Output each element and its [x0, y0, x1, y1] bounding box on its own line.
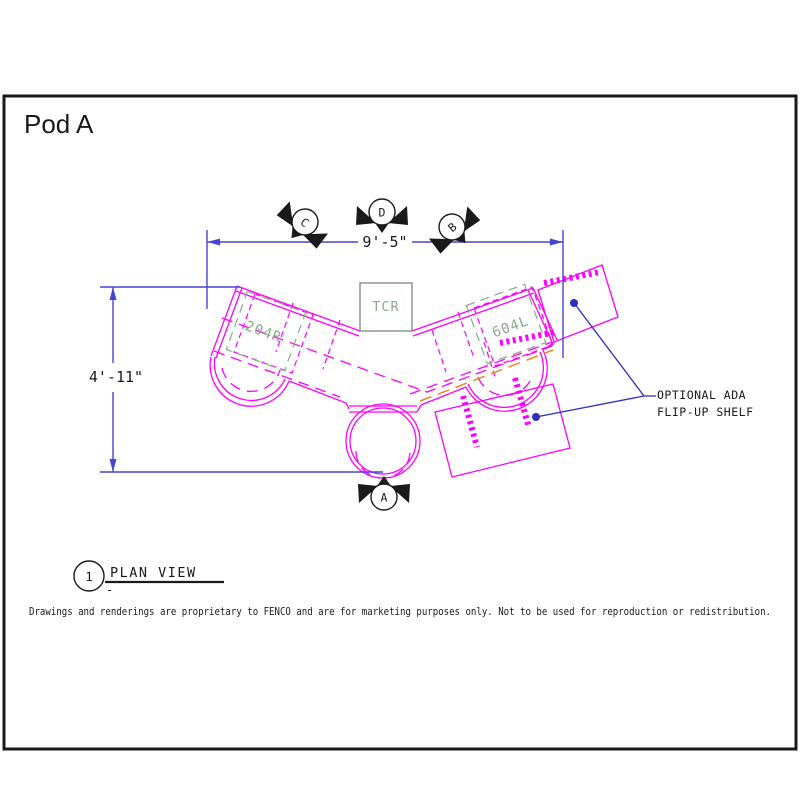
counter-dashed-front-right	[410, 342, 552, 394]
section-marker-d: D	[356, 199, 408, 233]
stool-center	[346, 404, 420, 478]
ada-leaders: OPTIONAL ADA FLIP-UP SHELF	[532, 299, 754, 421]
sheet-border	[4, 96, 796, 749]
section-letter-d: D	[379, 206, 386, 220]
label-tcr: TCR	[372, 299, 399, 315]
drawing-sheet: Pod A	[0, 0, 800, 800]
dim-arrow-top	[110, 287, 117, 300]
section-marker-b: B	[424, 200, 486, 259]
ada-note-line2: FLIP-UP SHELF	[657, 405, 754, 419]
dim-arrow-bottom	[110, 459, 117, 472]
detail-number: 1	[85, 569, 93, 584]
dim-arrow-left	[207, 239, 220, 246]
divider	[432, 330, 446, 372]
counter-end-left	[211, 286, 237, 356]
detail-sub: -	[106, 583, 113, 597]
dim-width-text: 9'-5"	[362, 233, 407, 251]
ada-clearance-line	[420, 350, 553, 401]
counter-front-left	[289, 381, 349, 409]
section-marker-a: A	[358, 476, 410, 510]
dim-arrow-right	[550, 239, 563, 246]
section-letter-a: A	[381, 491, 388, 505]
divider	[484, 342, 496, 380]
ada-shelves	[420, 265, 618, 477]
page-title: Pod A	[24, 109, 94, 139]
dimension-height: 4'-11"	[89, 287, 383, 472]
flip-up-shelf-bottom	[435, 384, 570, 477]
equipment-annotations: 204R 604L TCR	[226, 283, 545, 371]
dim-height-text: 4'-11"	[89, 368, 143, 386]
label-right-unit: 604L	[490, 313, 531, 341]
counter-front-right	[421, 387, 466, 405]
leader-line	[536, 396, 644, 417]
section-marker-c: C	[272, 195, 334, 254]
ada-note-line1: OPTIONAL ADA	[657, 388, 746, 402]
plan-drawing-svg: Pod A	[0, 0, 800, 800]
hinge-hatch	[544, 272, 600, 283]
label-left-unit: 204R	[243, 318, 284, 346]
detail-title: PLAN VIEW	[110, 565, 197, 581]
disclaimer-text: Drawings and renderings are proprietary …	[29, 606, 771, 618]
detail-callout: 1 PLAN VIEW -	[74, 561, 224, 597]
divider	[323, 320, 340, 369]
leader-line	[574, 303, 656, 396]
